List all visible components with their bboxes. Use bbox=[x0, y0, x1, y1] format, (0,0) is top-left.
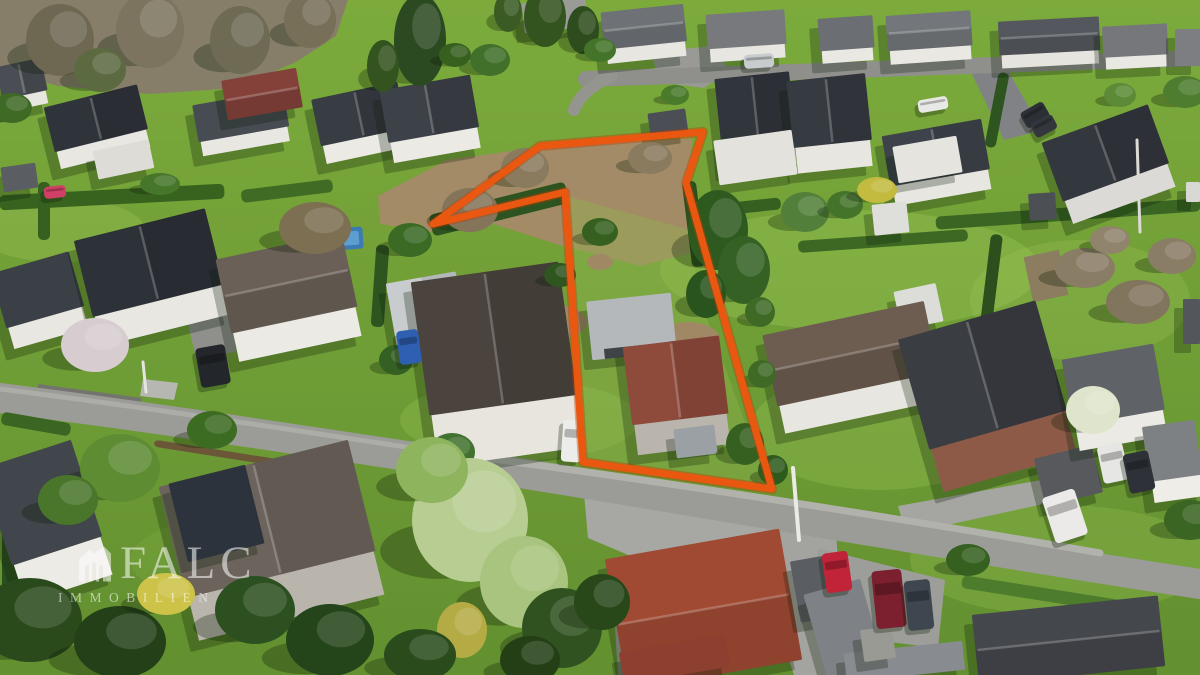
tree-highlight bbox=[594, 580, 625, 608]
house bbox=[876, 10, 974, 74]
tree-highlight bbox=[108, 441, 152, 475]
tree-highlight bbox=[403, 226, 427, 243]
tree-highlight bbox=[578, 11, 596, 35]
tree-highlight bbox=[421, 444, 461, 477]
house-roof bbox=[673, 425, 717, 459]
tree-highlight bbox=[317, 611, 365, 647]
tree-highlight bbox=[378, 45, 396, 71]
watermark: FALC IMMOBILIEN bbox=[56, 540, 257, 606]
tree-highlight bbox=[961, 547, 985, 563]
car bbox=[392, 329, 423, 370]
tree-highlight bbox=[409, 634, 449, 660]
house-roof bbox=[1186, 182, 1200, 202]
tree-highlight bbox=[92, 52, 121, 74]
tree-highlight bbox=[304, 207, 344, 233]
tree-highlight bbox=[758, 363, 773, 377]
tree-highlight bbox=[756, 300, 773, 315]
car-body bbox=[43, 185, 66, 199]
tree-highlight bbox=[59, 480, 92, 505]
house-roof bbox=[1102, 23, 1169, 57]
tree-highlight bbox=[1115, 85, 1133, 97]
tree-highlight bbox=[595, 221, 615, 235]
dirt-patch bbox=[587, 254, 613, 270]
tree-highlight bbox=[1104, 229, 1126, 243]
tree-highlight bbox=[595, 40, 613, 52]
tree-highlight bbox=[511, 545, 559, 591]
falc-house-icon bbox=[78, 546, 112, 583]
car-body bbox=[903, 579, 934, 631]
aerial-photo-listing: FALC IMMOBILIEN bbox=[0, 0, 1200, 675]
tree-highlight bbox=[140, 0, 177, 38]
tree-highlight bbox=[643, 145, 667, 161]
watermark-row: FALC bbox=[56, 540, 257, 587]
watermark-brand: FALC bbox=[120, 540, 257, 587]
tree-highlight bbox=[709, 198, 742, 238]
car-body bbox=[396, 329, 423, 366]
house bbox=[809, 15, 877, 73]
tree-highlight bbox=[6, 96, 28, 111]
tree-highlight bbox=[106, 613, 157, 649]
car bbox=[899, 579, 934, 636]
house bbox=[989, 16, 1102, 78]
tree-highlight bbox=[871, 180, 893, 193]
car bbox=[817, 550, 853, 598]
tree-highlight bbox=[85, 323, 122, 350]
tree-highlight bbox=[412, 3, 441, 49]
house bbox=[1093, 23, 1170, 79]
tree-highlight bbox=[450, 45, 468, 57]
house-roof bbox=[0, 163, 38, 193]
car bbox=[867, 569, 907, 634]
house-roof bbox=[817, 15, 874, 51]
house-roof bbox=[1183, 299, 1200, 344]
house-roof bbox=[1175, 29, 1200, 66]
house-roof bbox=[871, 201, 909, 235]
tree-highlight bbox=[484, 47, 506, 63]
car-body bbox=[821, 550, 852, 593]
tree-highlight bbox=[671, 87, 686, 97]
tree-highlight bbox=[231, 13, 264, 47]
tree-highlight bbox=[1085, 391, 1115, 415]
tree-highlight bbox=[154, 175, 176, 186]
tree-highlight bbox=[1165, 242, 1191, 260]
tree-highlight bbox=[205, 415, 233, 434]
tree-highlight bbox=[1128, 284, 1163, 306]
house-roof bbox=[705, 9, 786, 49]
tree-highlight bbox=[50, 11, 87, 47]
tree-highlight bbox=[521, 641, 554, 665]
car-body bbox=[744, 53, 775, 69]
house bbox=[592, 4, 690, 74]
watermark-subtitle: IMMOBILIEN bbox=[58, 590, 257, 606]
tree-highlight bbox=[1076, 252, 1109, 272]
tree-highlight bbox=[736, 243, 765, 277]
tree-highlight bbox=[455, 608, 483, 636]
house-roof bbox=[1028, 192, 1057, 221]
